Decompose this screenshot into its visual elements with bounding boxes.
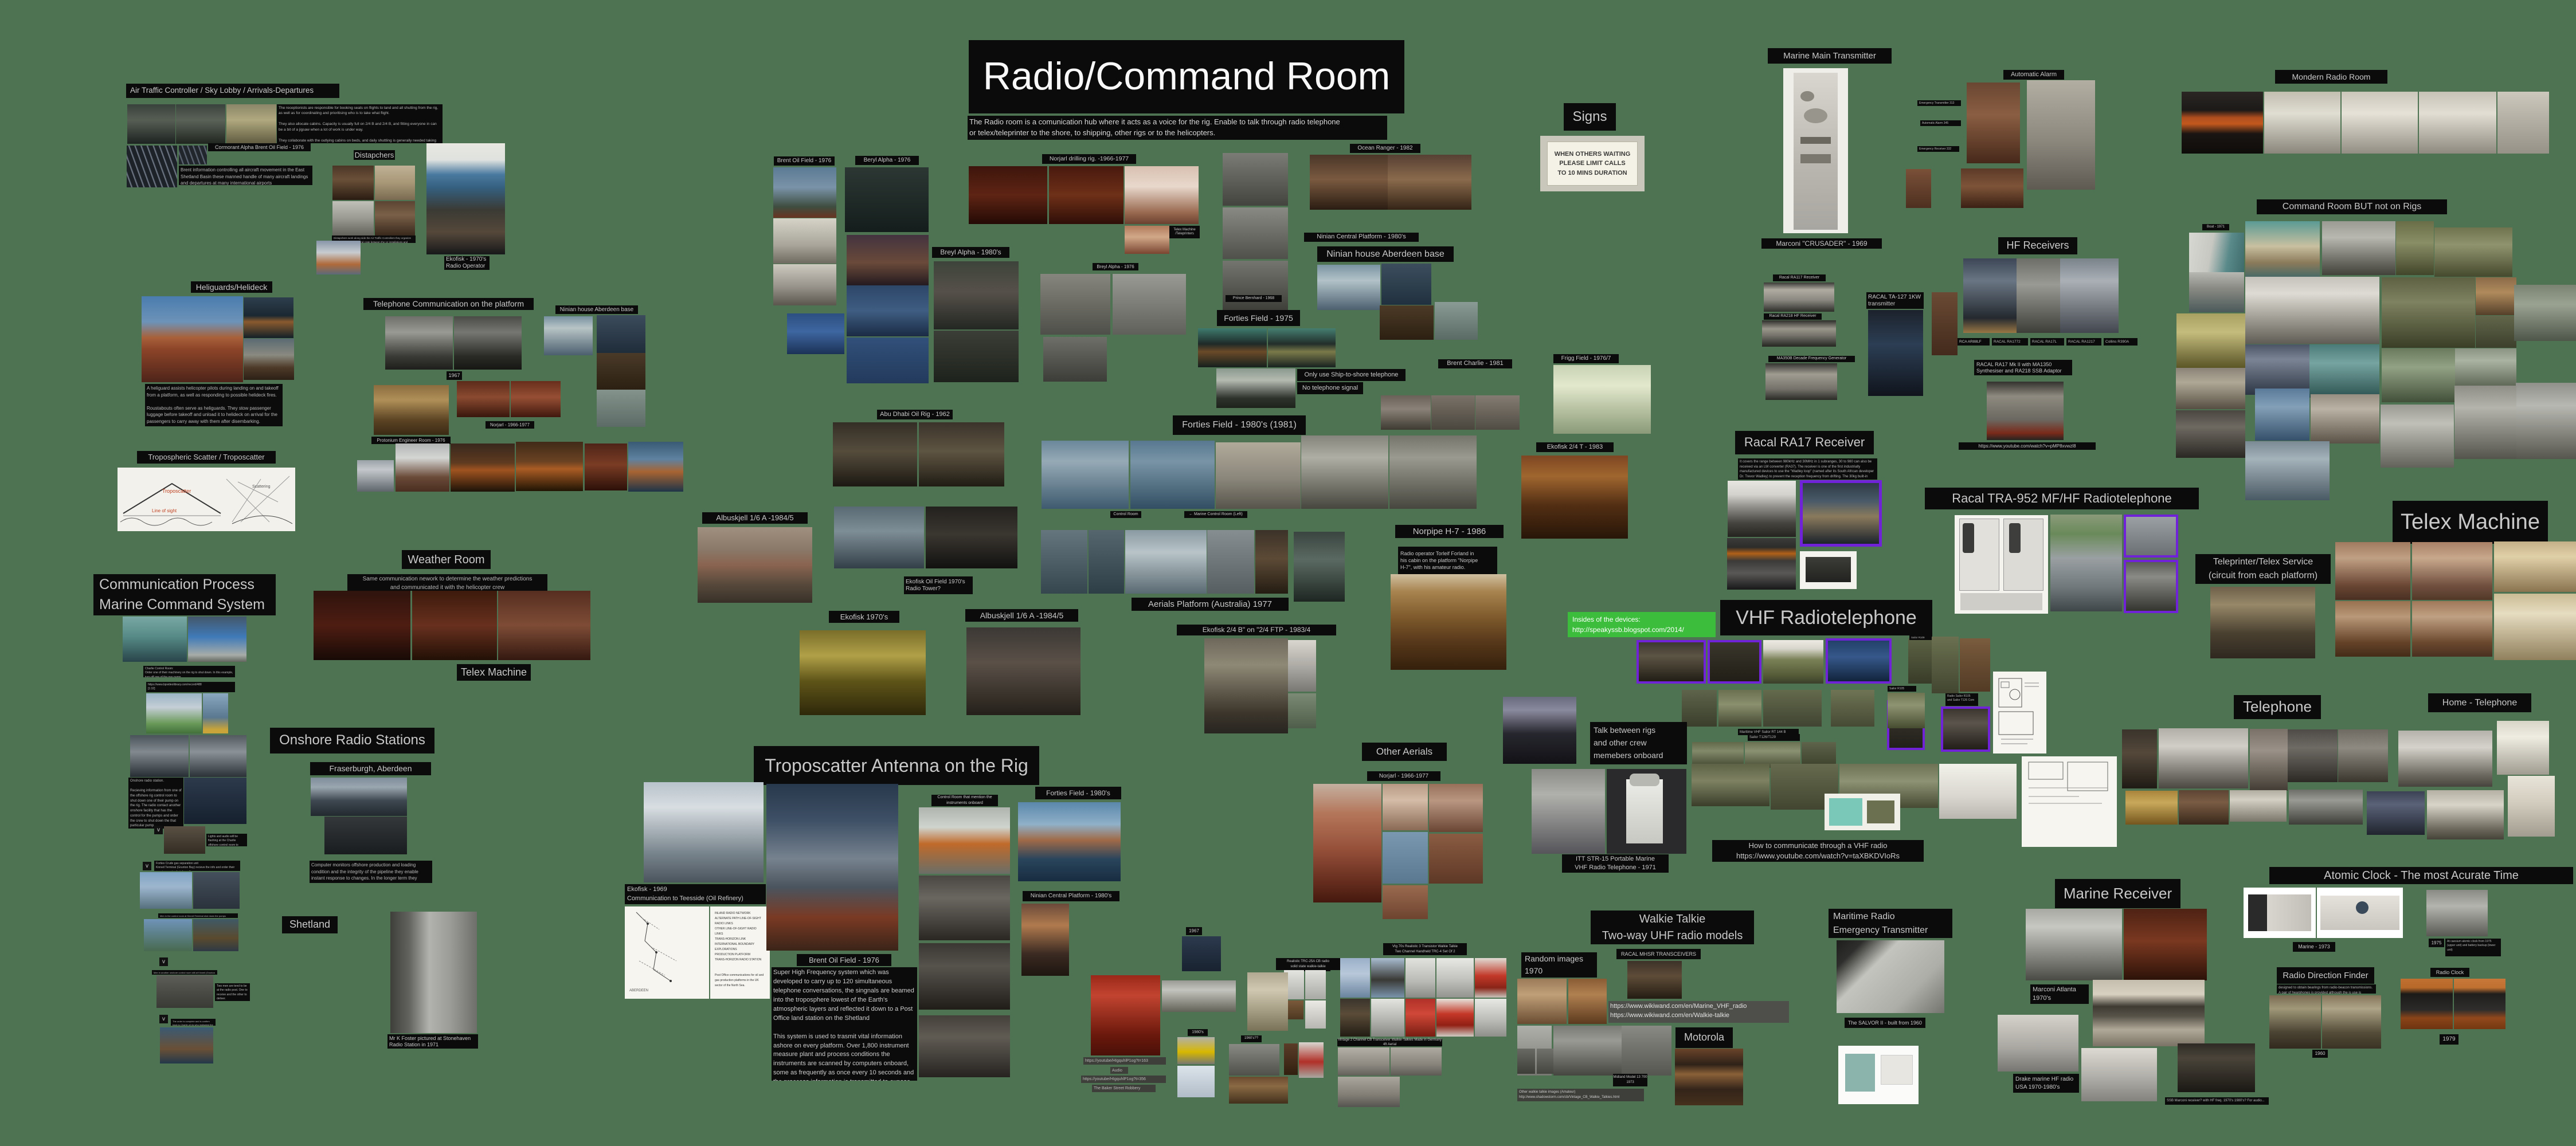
svg-text:Line of sight: Line of sight <box>152 508 177 513</box>
svg-text:Scattering: Scattering <box>252 485 271 489</box>
svg-text:Troposcatter: Troposcatter <box>162 488 191 494</box>
svg-text:ABERDEEN: ABERDEEN <box>629 989 648 992</box>
